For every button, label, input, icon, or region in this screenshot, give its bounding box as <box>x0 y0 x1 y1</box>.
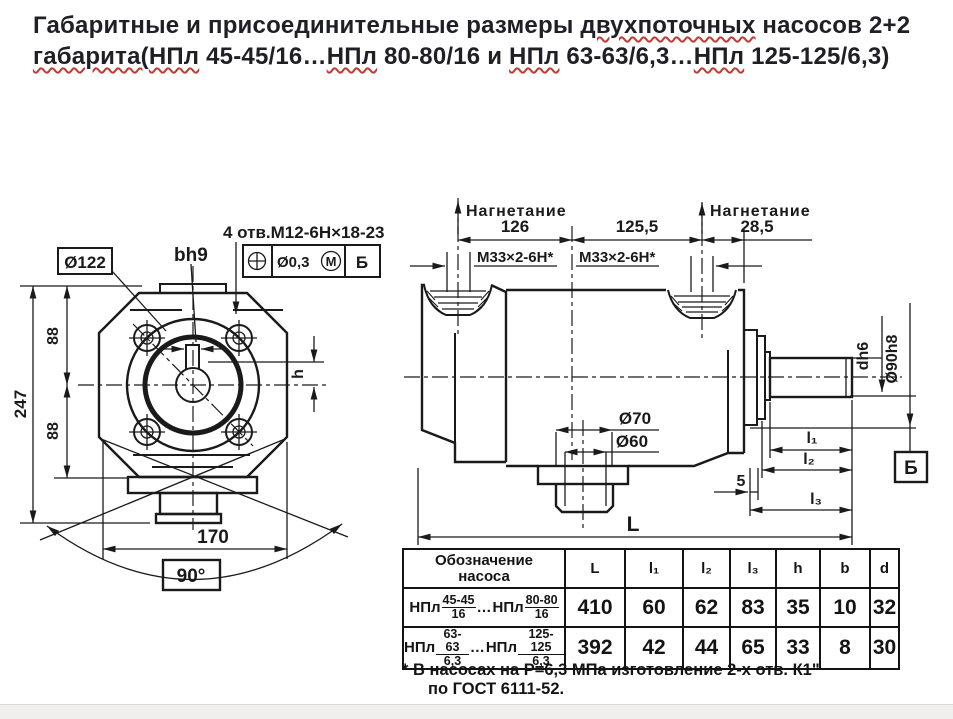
dh6-label: dh6 <box>855 342 872 371</box>
header-l1: l₁ <box>625 549 683 588</box>
fcf-modifier: М <box>326 254 337 269</box>
header-l3: l₃ <box>730 549 776 588</box>
L-label: L <box>627 513 640 536</box>
table-cell: 62 <box>683 588 730 627</box>
d70-label: Ø70 <box>619 409 651 428</box>
l2-label: l₂ <box>803 451 815 468</box>
thread-left-label: М33×2-6Н* <box>477 249 553 266</box>
horizontal-scrollbar[interactable] <box>0 704 953 719</box>
dim-88-bottom-label: 88 <box>45 422 62 440</box>
fcf-datum: Б <box>356 253 368 272</box>
bh9-label: bh9 <box>174 245 208 266</box>
ext-line-285 <box>744 228 812 283</box>
dim-88-top-label: 88 <box>45 327 62 345</box>
front-centerlines <box>78 266 326 530</box>
header-h: h <box>776 549 820 588</box>
front-view-drawing: 247 88 88 h bh9 170 90° <box>11 223 385 590</box>
table-cell: 32 <box>870 588 899 627</box>
document-page: Габаритные и присоединительные размеры д… <box>0 0 953 719</box>
dimensions-table: Обозначение насоса L l₁ l₂ l₃ h b d НПл … <box>402 548 900 670</box>
table-cell: 10 <box>820 588 870 627</box>
fcf-tolerance-value: Ø0,3 <box>277 254 310 271</box>
dim-126-label: 126 <box>501 217 529 236</box>
l1-label: l₁ <box>806 430 817 447</box>
dim-125-5-label: 125,5 <box>616 217 659 236</box>
header-pump-designation: Обозначение насоса <box>403 549 565 588</box>
d90h8-label: Ø90h8 <box>884 334 901 383</box>
thread-right-label: М33×2-6Н* <box>579 249 655 266</box>
header-l2: l₂ <box>683 549 730 588</box>
dim-5-label: 5 <box>737 473 746 490</box>
table-header-row: Обозначение насоса L l₁ l₂ l₃ h b d <box>403 549 899 588</box>
table-cell: 410 <box>565 588 625 627</box>
d60-label: Ø60 <box>616 432 648 451</box>
dim-28-5-label: 28,5 <box>740 217 773 236</box>
datum-label: Б <box>904 458 918 479</box>
header-b: b <box>820 549 870 588</box>
side-view-drawing: Нагнетание Нагнетание 126 125,5 28,5 М33… <box>404 198 927 545</box>
header-d: d <box>870 549 899 588</box>
d122-leader <box>112 271 166 331</box>
table-cell: 83 <box>730 588 776 627</box>
ext-lines-170 <box>103 442 287 559</box>
dim-170-label: 170 <box>197 527 229 548</box>
l3-label: l₃ <box>810 491 822 508</box>
footnote-line-2: по ГОСТ 6111-52. <box>428 680 947 699</box>
pump-designation-cell: НПл 45-4516 … НПл 80-8016 <box>403 588 565 627</box>
footnote-line-1: * В насосах на Р=6,3 МПа изготовление 2-… <box>402 661 947 680</box>
dim-247-label: 247 <box>11 390 30 418</box>
table-cell: 35 <box>776 588 820 627</box>
side-centerlines <box>404 198 902 528</box>
table-cell: 60 <box>625 588 683 627</box>
end-cap-outline <box>422 285 506 462</box>
d122-label: Ø122 <box>64 253 106 272</box>
table-row: НПл 45-4516 … НПл 80-8016 410 60 62 83 3… <box>403 588 899 627</box>
end-cap-joint <box>491 285 506 462</box>
dim-h-label: h <box>290 369 307 379</box>
header-L: L <box>565 549 625 588</box>
angle-label: 90° <box>177 566 206 587</box>
holes-label: 4 отв.М12-6Н×18-23 <box>223 223 385 242</box>
feature-control-frame: Ø0,3 М Б <box>243 245 380 277</box>
footnote: * В насосах на Р=6,3 МПа изготовление 2-… <box>402 661 947 699</box>
